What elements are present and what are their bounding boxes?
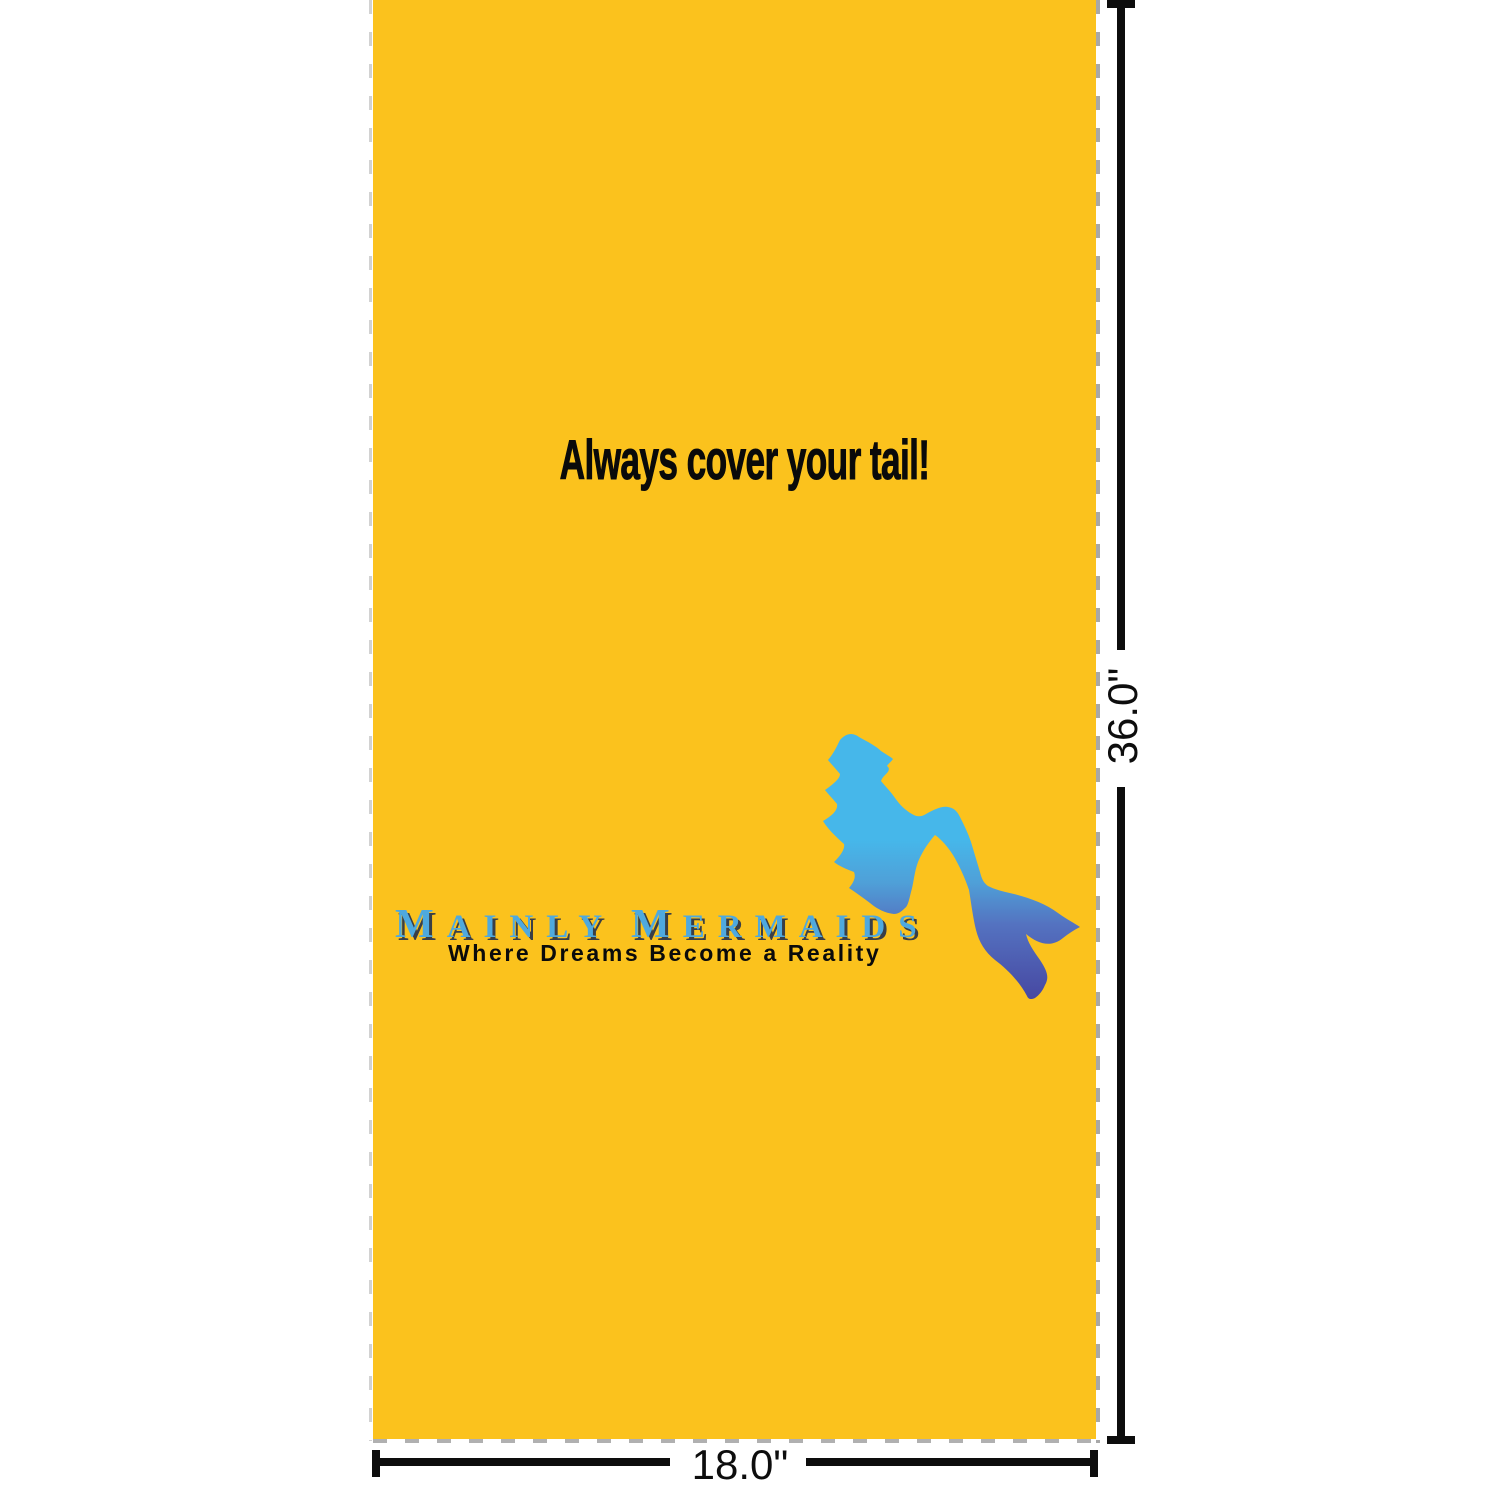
brand-word: MAINLY (395, 924, 615, 941)
cut-guide-left (369, 0, 372, 1441)
towel-message: Always cover your tail! (373, 432, 1096, 503)
brand-tagline: Where Dreams Become a Reality (448, 942, 881, 965)
height-dimension-cap-bottom (1107, 1436, 1135, 1444)
width-dimension-line (373, 1458, 670, 1466)
product-preview: Always cover your tail! MAINLYMERMAIDS W… (0, 0, 1500, 1500)
width-dimension-line (806, 1458, 1092, 1466)
width-dimension-cap-left (372, 1450, 380, 1477)
height-dimension-line (1117, 0, 1125, 650)
height-dimension-line (1117, 787, 1125, 1442)
width-dimension-label: 18.0" (640, 1443, 840, 1487)
towel-message-text: Always cover your tail! (560, 432, 930, 488)
height-dimension-cap-top (1107, 0, 1135, 8)
width-dimension-cap-right (1090, 1450, 1098, 1477)
towel-canvas: Always cover your tail! MAINLYMERMAIDS W… (373, 0, 1096, 1439)
height-dimension-label: 36.0" (1101, 636, 1145, 796)
brand-word: MERMAIDS (631, 924, 930, 941)
